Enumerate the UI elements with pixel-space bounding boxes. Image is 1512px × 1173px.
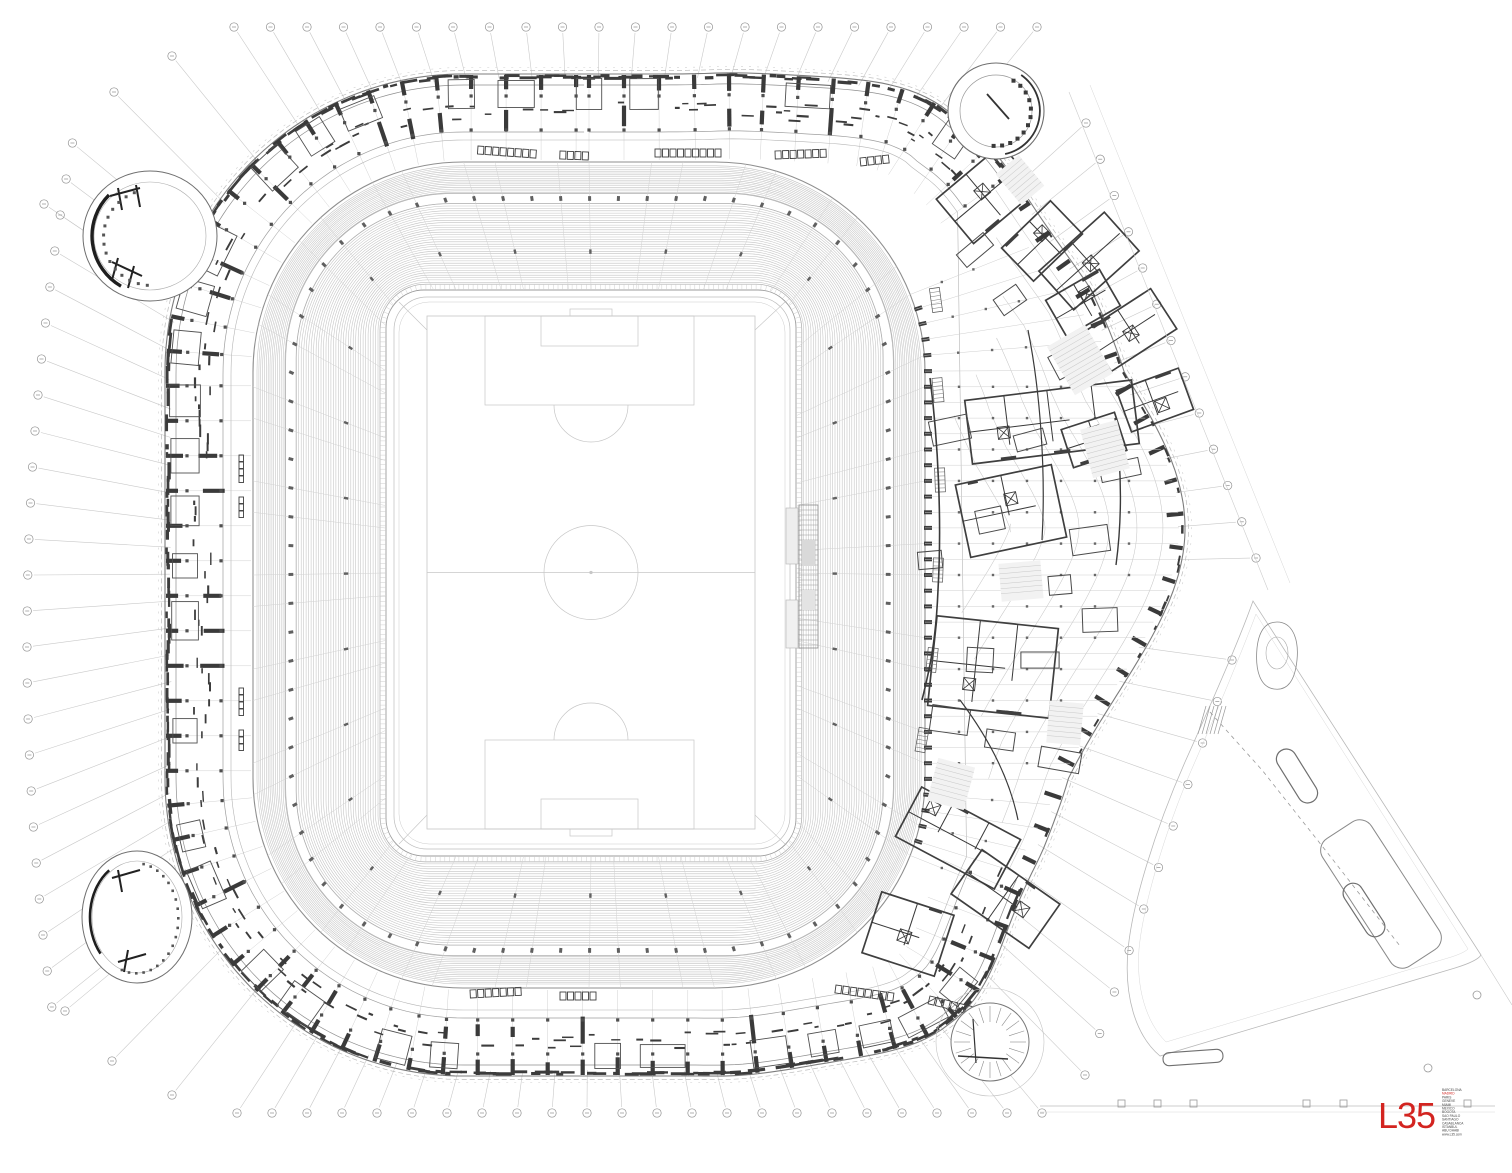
svg-text:www.L35.com: www.L35.com [1442,1132,1462,1136]
svg-text:L35: L35 [1378,1095,1435,1136]
